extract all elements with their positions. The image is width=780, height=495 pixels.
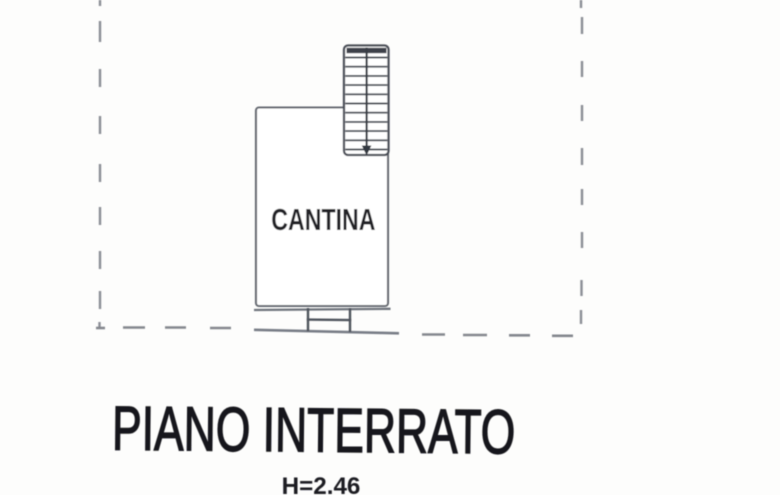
svg-text:CANTINA: CANTINA bbox=[271, 203, 375, 237]
svg-text:H=2.46: H=2.46 bbox=[282, 473, 361, 495]
svg-text:PIANO INTERRATO: PIANO INTERRATO bbox=[112, 394, 516, 467]
